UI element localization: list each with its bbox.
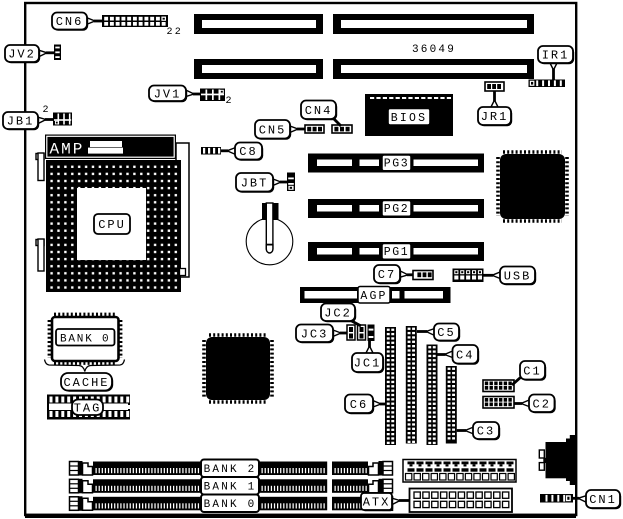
svg-text:CN4: CN4	[305, 104, 333, 118]
svg-text:TAG: TAG	[74, 401, 102, 415]
svg-text:IR1: IR1	[542, 49, 570, 63]
svg-text:C1: C1	[523, 364, 541, 378]
svg-text:AMP: AMP	[50, 141, 85, 159]
svg-text:JV1: JV1	[154, 87, 182, 101]
svg-text:2: 2	[43, 105, 49, 116]
svg-text:JR1: JR1	[481, 110, 509, 124]
svg-text:C7: C7	[378, 268, 396, 282]
svg-text:CACHE: CACHE	[63, 376, 109, 390]
svg-text:PG1: PG1	[384, 246, 410, 259]
svg-text:JV2: JV2	[8, 48, 36, 62]
svg-text:BANK 1: BANK 1	[204, 481, 257, 493]
svg-text:PG2: PG2	[384, 203, 410, 216]
svg-text:C4: C4	[456, 348, 474, 362]
svg-text:BANK 0: BANK 0	[204, 499, 257, 511]
svg-text:JC2: JC2	[324, 306, 352, 320]
svg-text:C2: C2	[533, 397, 551, 411]
svg-text:JC3: JC3	[301, 327, 329, 341]
svg-text:PG3: PG3	[384, 158, 410, 171]
svg-text:C5: C5	[437, 326, 455, 340]
svg-text:JC1: JC1	[354, 357, 382, 371]
svg-text:CPU: CPU	[98, 218, 126, 232]
svg-text:C3: C3	[477, 425, 495, 439]
svg-text:22: 22	[167, 27, 183, 38]
svg-text:2: 2	[226, 96, 232, 107]
svg-text:ATX: ATX	[363, 496, 391, 510]
svg-text:JB1: JB1	[7, 115, 35, 129]
svg-text:36049: 36049	[412, 44, 456, 56]
svg-text:BANK 0: BANK 0	[60, 334, 110, 346]
svg-text:BANK 2: BANK 2	[204, 464, 257, 476]
svg-text:C6: C6	[350, 398, 368, 412]
svg-text:CN5: CN5	[259, 123, 287, 137]
svg-text:BIOS: BIOS	[391, 112, 427, 125]
svg-text:USB: USB	[504, 269, 532, 283]
svg-text:C8: C8	[239, 145, 257, 159]
svg-text:CN6: CN6	[56, 15, 84, 29]
svg-text:AGP: AGP	[360, 290, 387, 303]
svg-text:CN1: CN1	[589, 493, 617, 507]
svg-text:JBT: JBT	[241, 176, 269, 190]
